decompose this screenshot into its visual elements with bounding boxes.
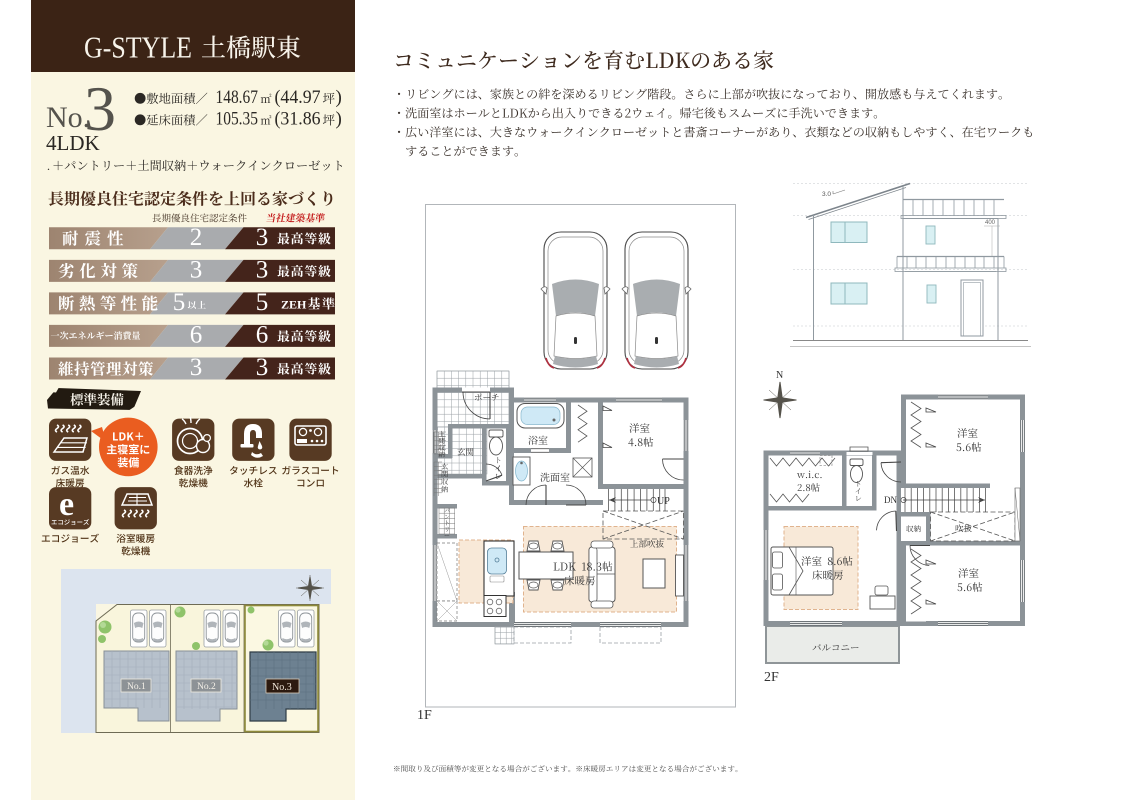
svg-text:ZEH: ZEH bbox=[281, 297, 307, 311]
svg-text:e: e bbox=[59, 486, 74, 523]
svg-text:3: 3 bbox=[190, 256, 203, 283]
svg-text:(31.86: (31.86 bbox=[275, 109, 321, 130]
svg-text:3.0: 3.0 bbox=[822, 191, 831, 198]
svg-text:No.1: No.1 bbox=[127, 682, 146, 692]
svg-text:No.2: No.2 bbox=[197, 682, 216, 692]
svg-text:3: 3 bbox=[256, 354, 269, 381]
svg-text:N: N bbox=[776, 370, 783, 381]
svg-text:G-STYLE: G-STYLE bbox=[84, 30, 192, 65]
svg-text:3: 3 bbox=[190, 354, 203, 381]
svg-text:1F: 1F bbox=[417, 708, 432, 723]
svg-text:2F: 2F bbox=[764, 670, 779, 685]
svg-text:3: 3 bbox=[256, 256, 269, 283]
svg-text:3: 3 bbox=[256, 224, 269, 251]
svg-text:105.35: 105.35 bbox=[216, 109, 259, 130]
svg-text:5: 5 bbox=[173, 289, 186, 316]
svg-text:.: . bbox=[47, 159, 50, 173]
svg-text:UP: UP bbox=[657, 496, 670, 507]
svg-text:No.3: No.3 bbox=[272, 682, 292, 693]
svg-text:400: 400 bbox=[985, 220, 996, 226]
svg-text:(44.97: (44.97 bbox=[275, 87, 321, 108]
svg-text:6: 6 bbox=[256, 321, 269, 348]
svg-text:): ) bbox=[336, 87, 342, 108]
svg-text:148.67: 148.67 bbox=[216, 87, 259, 108]
svg-text:DN: DN bbox=[884, 495, 897, 505]
svg-text:5: 5 bbox=[256, 289, 269, 316]
svg-text:): ) bbox=[336, 109, 342, 130]
svg-text:6: 6 bbox=[190, 321, 203, 348]
svg-text:4LDK: 4LDK bbox=[46, 131, 100, 155]
svg-text:2: 2 bbox=[190, 224, 203, 251]
